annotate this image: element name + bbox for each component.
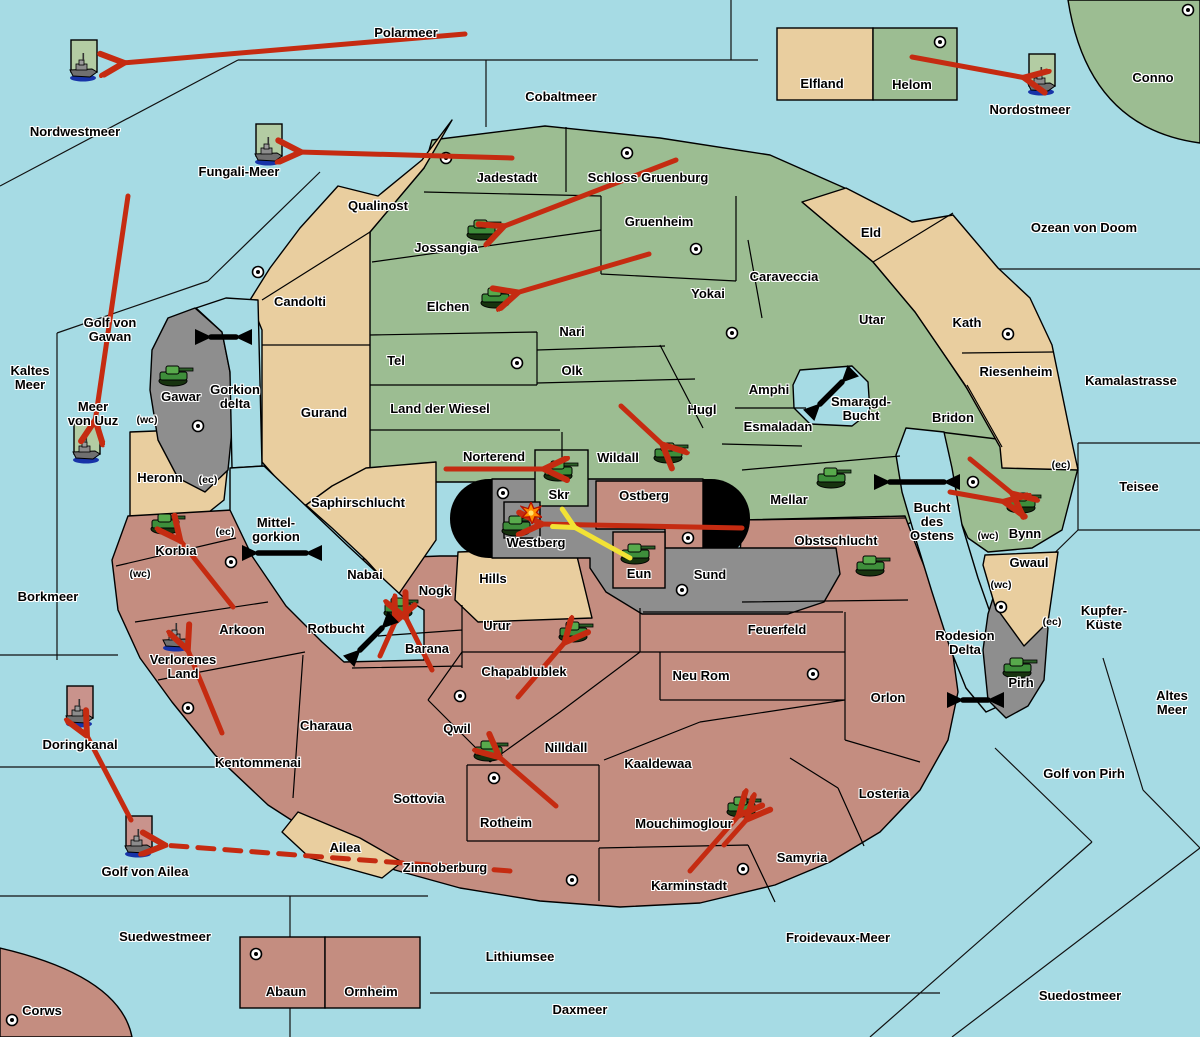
city-marker xyxy=(7,1015,18,1026)
city-marker xyxy=(677,585,688,596)
city-marker xyxy=(683,533,694,544)
city-marker xyxy=(251,949,262,960)
game-map: PolarmeerNordwestmeerCobaltmeerNordostme… xyxy=(0,0,1200,1037)
city-marker xyxy=(193,421,204,432)
territory-box-ornheim[interactable] xyxy=(325,937,420,1008)
city-marker xyxy=(727,328,738,339)
ship-unit[interactable] xyxy=(66,686,93,728)
ship-unit[interactable] xyxy=(1028,54,1055,96)
city-marker xyxy=(738,864,749,875)
territory-box-elfland[interactable] xyxy=(777,28,873,100)
territory-box-abaun[interactable] xyxy=(240,937,325,1008)
city-marker xyxy=(691,244,702,255)
ship-unit[interactable] xyxy=(255,124,282,166)
map-canvas xyxy=(0,0,1200,1037)
region-tan-hills[interactable] xyxy=(455,548,592,622)
city-marker xyxy=(567,875,578,886)
city-marker xyxy=(622,148,633,159)
ship-unit[interactable] xyxy=(73,422,100,464)
city-marker xyxy=(489,773,500,784)
ship-unit[interactable] xyxy=(125,816,152,858)
city-marker xyxy=(1183,5,1194,16)
city-marker xyxy=(968,477,979,488)
city-marker xyxy=(512,358,523,369)
city-marker xyxy=(498,488,509,499)
city-marker xyxy=(996,602,1007,613)
city-marker xyxy=(808,669,819,680)
city-marker xyxy=(253,267,264,278)
city-marker xyxy=(183,703,194,714)
ship-unit[interactable] xyxy=(70,40,97,82)
city-marker xyxy=(455,691,466,702)
city-marker xyxy=(1003,329,1014,340)
city-marker xyxy=(935,37,946,48)
city-marker xyxy=(226,557,237,568)
